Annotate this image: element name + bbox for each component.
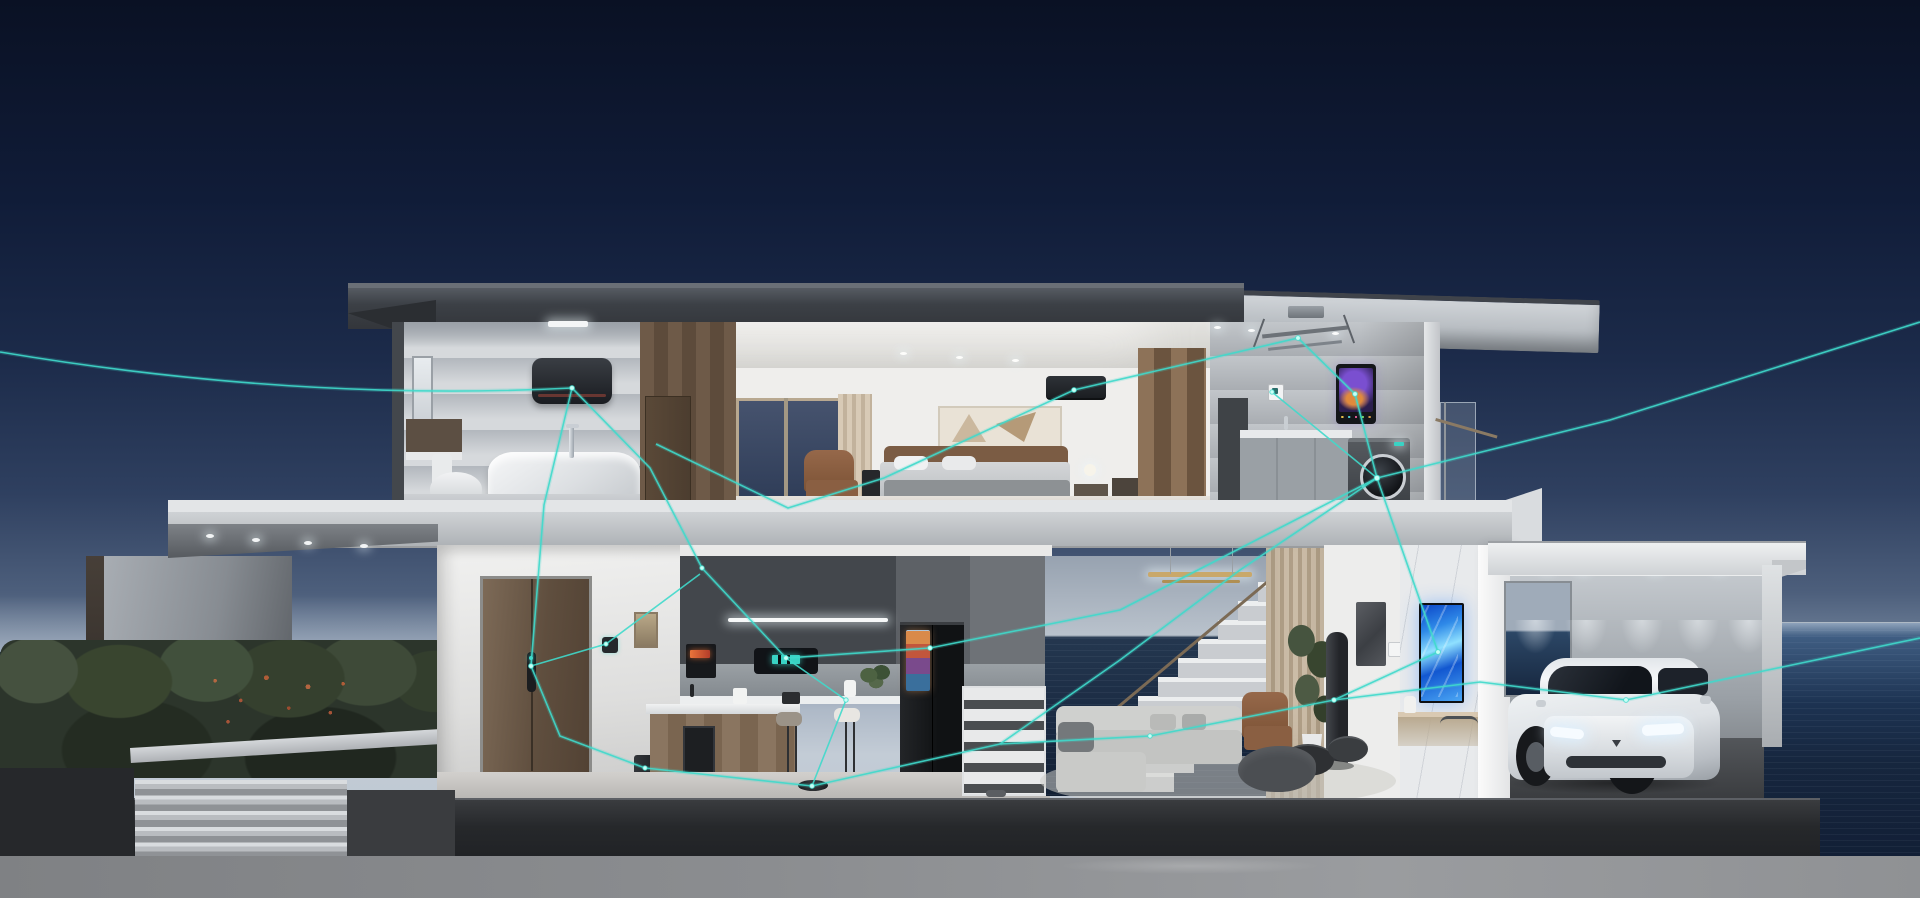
portrait-tv-streaks [1421, 605, 1458, 697]
island-pot [782, 692, 800, 704]
canopy-downlight-1 [206, 534, 214, 538]
step-platform [347, 790, 455, 858]
bean-bag [1238, 746, 1316, 792]
car-side-window [1658, 668, 1708, 696]
hedge-flowers [196, 664, 356, 740]
canopy-downlight-4 [360, 544, 368, 548]
smart-home-render [0, 0, 1920, 898]
laundry-downlight-2 [1248, 329, 1255, 332]
laundry-downlight-1 [1214, 326, 1221, 329]
laundry-downlight-3 [1332, 332, 1339, 335]
drying-rack-lift [1288, 306, 1324, 318]
front-door [480, 576, 592, 780]
bathroom-left-edge [392, 322, 404, 514]
entry-switch [602, 637, 618, 653]
bar-stool-1 [776, 712, 802, 726]
bedroom-ac [1046, 376, 1106, 400]
steps [135, 780, 347, 858]
laundry-switch-screen [1272, 388, 1278, 394]
water-heater [532, 358, 612, 404]
console-vase [1404, 696, 1416, 713]
under-cabinet-light [728, 618, 888, 622]
slippers [986, 790, 1006, 797]
sofa-pillow-2 [1182, 714, 1206, 730]
wardrobe [1138, 348, 1206, 514]
fridge-screen [906, 630, 930, 691]
coffee-maker [733, 688, 747, 704]
living-wall-art [1356, 602, 1386, 666]
laundry-counter [1240, 430, 1352, 438]
bed-pillow-1 [894, 456, 928, 470]
car-headlight-right [1642, 723, 1685, 736]
sofa-chaise [1056, 752, 1146, 792]
canopy-underside [168, 524, 438, 558]
pendant-wire-2 [1232, 546, 1233, 574]
laundry-control-screen-icons [1339, 414, 1373, 420]
tub-faucet [569, 424, 574, 458]
sofa-throw [1058, 722, 1094, 752]
hedge-planter [0, 768, 134, 860]
bedroom-door-leaf [645, 396, 691, 516]
hood-display [772, 655, 800, 664]
garage-roof-slab [1488, 541, 1806, 575]
bed-pillow-2 [942, 456, 976, 470]
kitchen-cabinets [680, 556, 1052, 674]
car-wheel-left-rim [1526, 742, 1546, 772]
car-mirror-left [1536, 700, 1546, 707]
laundry-cabinet-doors [1240, 438, 1352, 508]
pendant-wire-1 [1170, 546, 1171, 574]
balcony-post [1444, 402, 1446, 502]
washer-door [1360, 454, 1406, 500]
bar-stool-2 [834, 708, 860, 722]
water-heater-band [538, 394, 606, 397]
car-grille [1566, 756, 1666, 768]
coffee-table-2 [1328, 736, 1368, 762]
kitchen-faucet [690, 684, 694, 697]
sofa-pillow-1 [1150, 714, 1176, 730]
stainless-bin [1440, 716, 1478, 781]
laundry-faucet [1284, 416, 1288, 430]
laundry-control-screen-art [1339, 368, 1373, 412]
washer-display [1394, 442, 1404, 446]
bedside-lamp [1084, 464, 1096, 476]
kitchen-island-top [646, 704, 800, 714]
bedroom-downlight-3 [1012, 359, 1019, 362]
under-stair-cubby [962, 686, 1046, 796]
garage-right-wall [1762, 565, 1782, 747]
bathroom-ceiling-light [548, 321, 588, 327]
canopy-downlight-2 [252, 538, 260, 542]
smart-lock-led [529, 656, 533, 660]
entry-framed-art [634, 612, 658, 648]
floor-slab-lip [168, 500, 1512, 512]
ground-sheen [1060, 858, 1320, 874]
bedroom-downlight-1 [900, 352, 907, 355]
car-mirror-right [1700, 696, 1711, 704]
bedroom-window-mullion [784, 398, 788, 510]
oven-display [690, 650, 710, 658]
robot-vacuum [798, 780, 828, 791]
canopy-downlight-3 [304, 541, 312, 545]
tub-faucet-spout [566, 424, 579, 428]
ground [0, 856, 1920, 898]
pendant-light-bar [1148, 572, 1252, 577]
kitchen-plant [858, 664, 894, 692]
fridge-seam [932, 625, 933, 791]
pendant-light-bar-2 [1162, 580, 1240, 583]
kitchen-speaker [844, 680, 856, 697]
kitchen-island-base [650, 714, 796, 780]
bedroom-downlight-2 [956, 356, 963, 359]
